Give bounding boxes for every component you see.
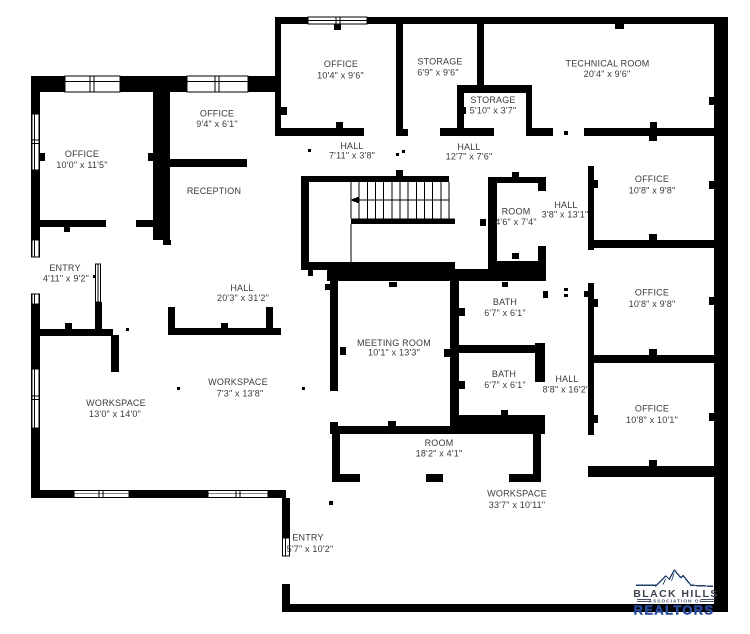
svg-text:ENTRY: ENTRY (292, 533, 323, 543)
svg-text:OFFICE: OFFICE (635, 404, 669, 414)
svg-text:9'4" x 6'1": 9'4" x 6'1" (196, 119, 238, 129)
svg-text:4'6" x 7'4": 4'6" x 7'4" (495, 217, 537, 227)
svg-text:STORAGE: STORAGE (470, 95, 515, 105)
svg-text:6'7" x 6'1": 6'7" x 6'1" (484, 380, 526, 390)
svg-text:6'7" x 6'1": 6'7" x 6'1" (484, 308, 526, 318)
svg-text:10'8" x 9'8": 10'8" x 9'8" (629, 299, 676, 309)
svg-text:BATH: BATH (493, 297, 517, 307)
svg-text:OFFICE: OFFICE (65, 149, 99, 159)
svg-text:ROOM: ROOM (425, 438, 454, 448)
svg-text:4'11" x 9'2": 4'11" x 9'2" (43, 274, 89, 284)
svg-text:6'9" x 9'6": 6'9" x 9'6" (417, 68, 459, 78)
svg-text:10'1" x 13'3": 10'1" x 13'3" (368, 348, 420, 358)
svg-text:18'2" x 4'1": 18'2" x 4'1" (416, 449, 463, 459)
svg-text:RECEPTION: RECEPTION (187, 186, 241, 196)
svg-text:12'7" x 7'6": 12'7" x 7'6" (446, 152, 493, 162)
svg-text:OFFICE: OFFICE (635, 288, 669, 298)
svg-text:20'4" x 9'6": 20'4" x 9'6" (584, 69, 631, 79)
svg-text:MEETING ROOM: MEETING ROOM (357, 338, 431, 348)
svg-text:7'3" x 13'8": 7'3" x 13'8" (217, 389, 264, 399)
svg-text:HALL: HALL (457, 142, 480, 152)
svg-text:ENTRY: ENTRY (49, 263, 80, 273)
svg-text:10'8" x 9'8": 10'8" x 9'8" (629, 186, 676, 196)
svg-text:OFFICE: OFFICE (635, 174, 669, 184)
svg-text:3'8" x 13'1": 3'8" x 13'1" (542, 210, 589, 220)
svg-text:HALL: HALL (340, 141, 363, 151)
svg-text:WORKSPACE: WORKSPACE (86, 398, 146, 408)
svg-text:13'0" x 14'0": 13'0" x 14'0" (89, 409, 141, 419)
svg-text:STORAGE: STORAGE (417, 57, 462, 67)
svg-text:REALTORS: REALTORS (634, 602, 715, 617)
svg-text:WORKSPACE: WORKSPACE (208, 377, 268, 387)
svg-text:HALL: HALL (555, 374, 578, 384)
svg-text:7'11" x 3'8": 7'11" x 3'8" (329, 151, 375, 161)
svg-text:8'8" x 16'2": 8'8" x 16'2" (543, 385, 590, 395)
svg-text:10'0" x 11'5": 10'0" x 11'5" (56, 160, 107, 170)
svg-text:10'8" x 10'1": 10'8" x 10'1" (626, 415, 678, 425)
svg-text:BATH: BATH (492, 369, 516, 379)
svg-text:33'7" x 10'11": 33'7" x 10'11" (489, 500, 546, 510)
svg-text:HALL: HALL (230, 283, 253, 293)
svg-text:5'7" x 10'2": 5'7" x 10'2" (287, 544, 334, 554)
svg-text:10'4" x 9'6": 10'4" x 9'6" (317, 71, 364, 81)
svg-text:WORKSPACE: WORKSPACE (487, 489, 547, 499)
svg-text:HALL: HALL (554, 200, 577, 210)
svg-text:ROOM: ROOM (502, 207, 531, 217)
svg-text:OFFICE: OFFICE (200, 109, 234, 119)
svg-text:OFFICE: OFFICE (324, 59, 358, 69)
svg-text:5'10" x 3'7": 5'10" x 3'7" (470, 106, 517, 116)
svg-text:BLACK HILLS: BLACK HILLS (633, 588, 718, 600)
svg-text:TECHNICAL ROOM: TECHNICAL ROOM (566, 59, 650, 69)
svg-text:20'3" x 31'2": 20'3" x 31'2" (217, 293, 269, 303)
